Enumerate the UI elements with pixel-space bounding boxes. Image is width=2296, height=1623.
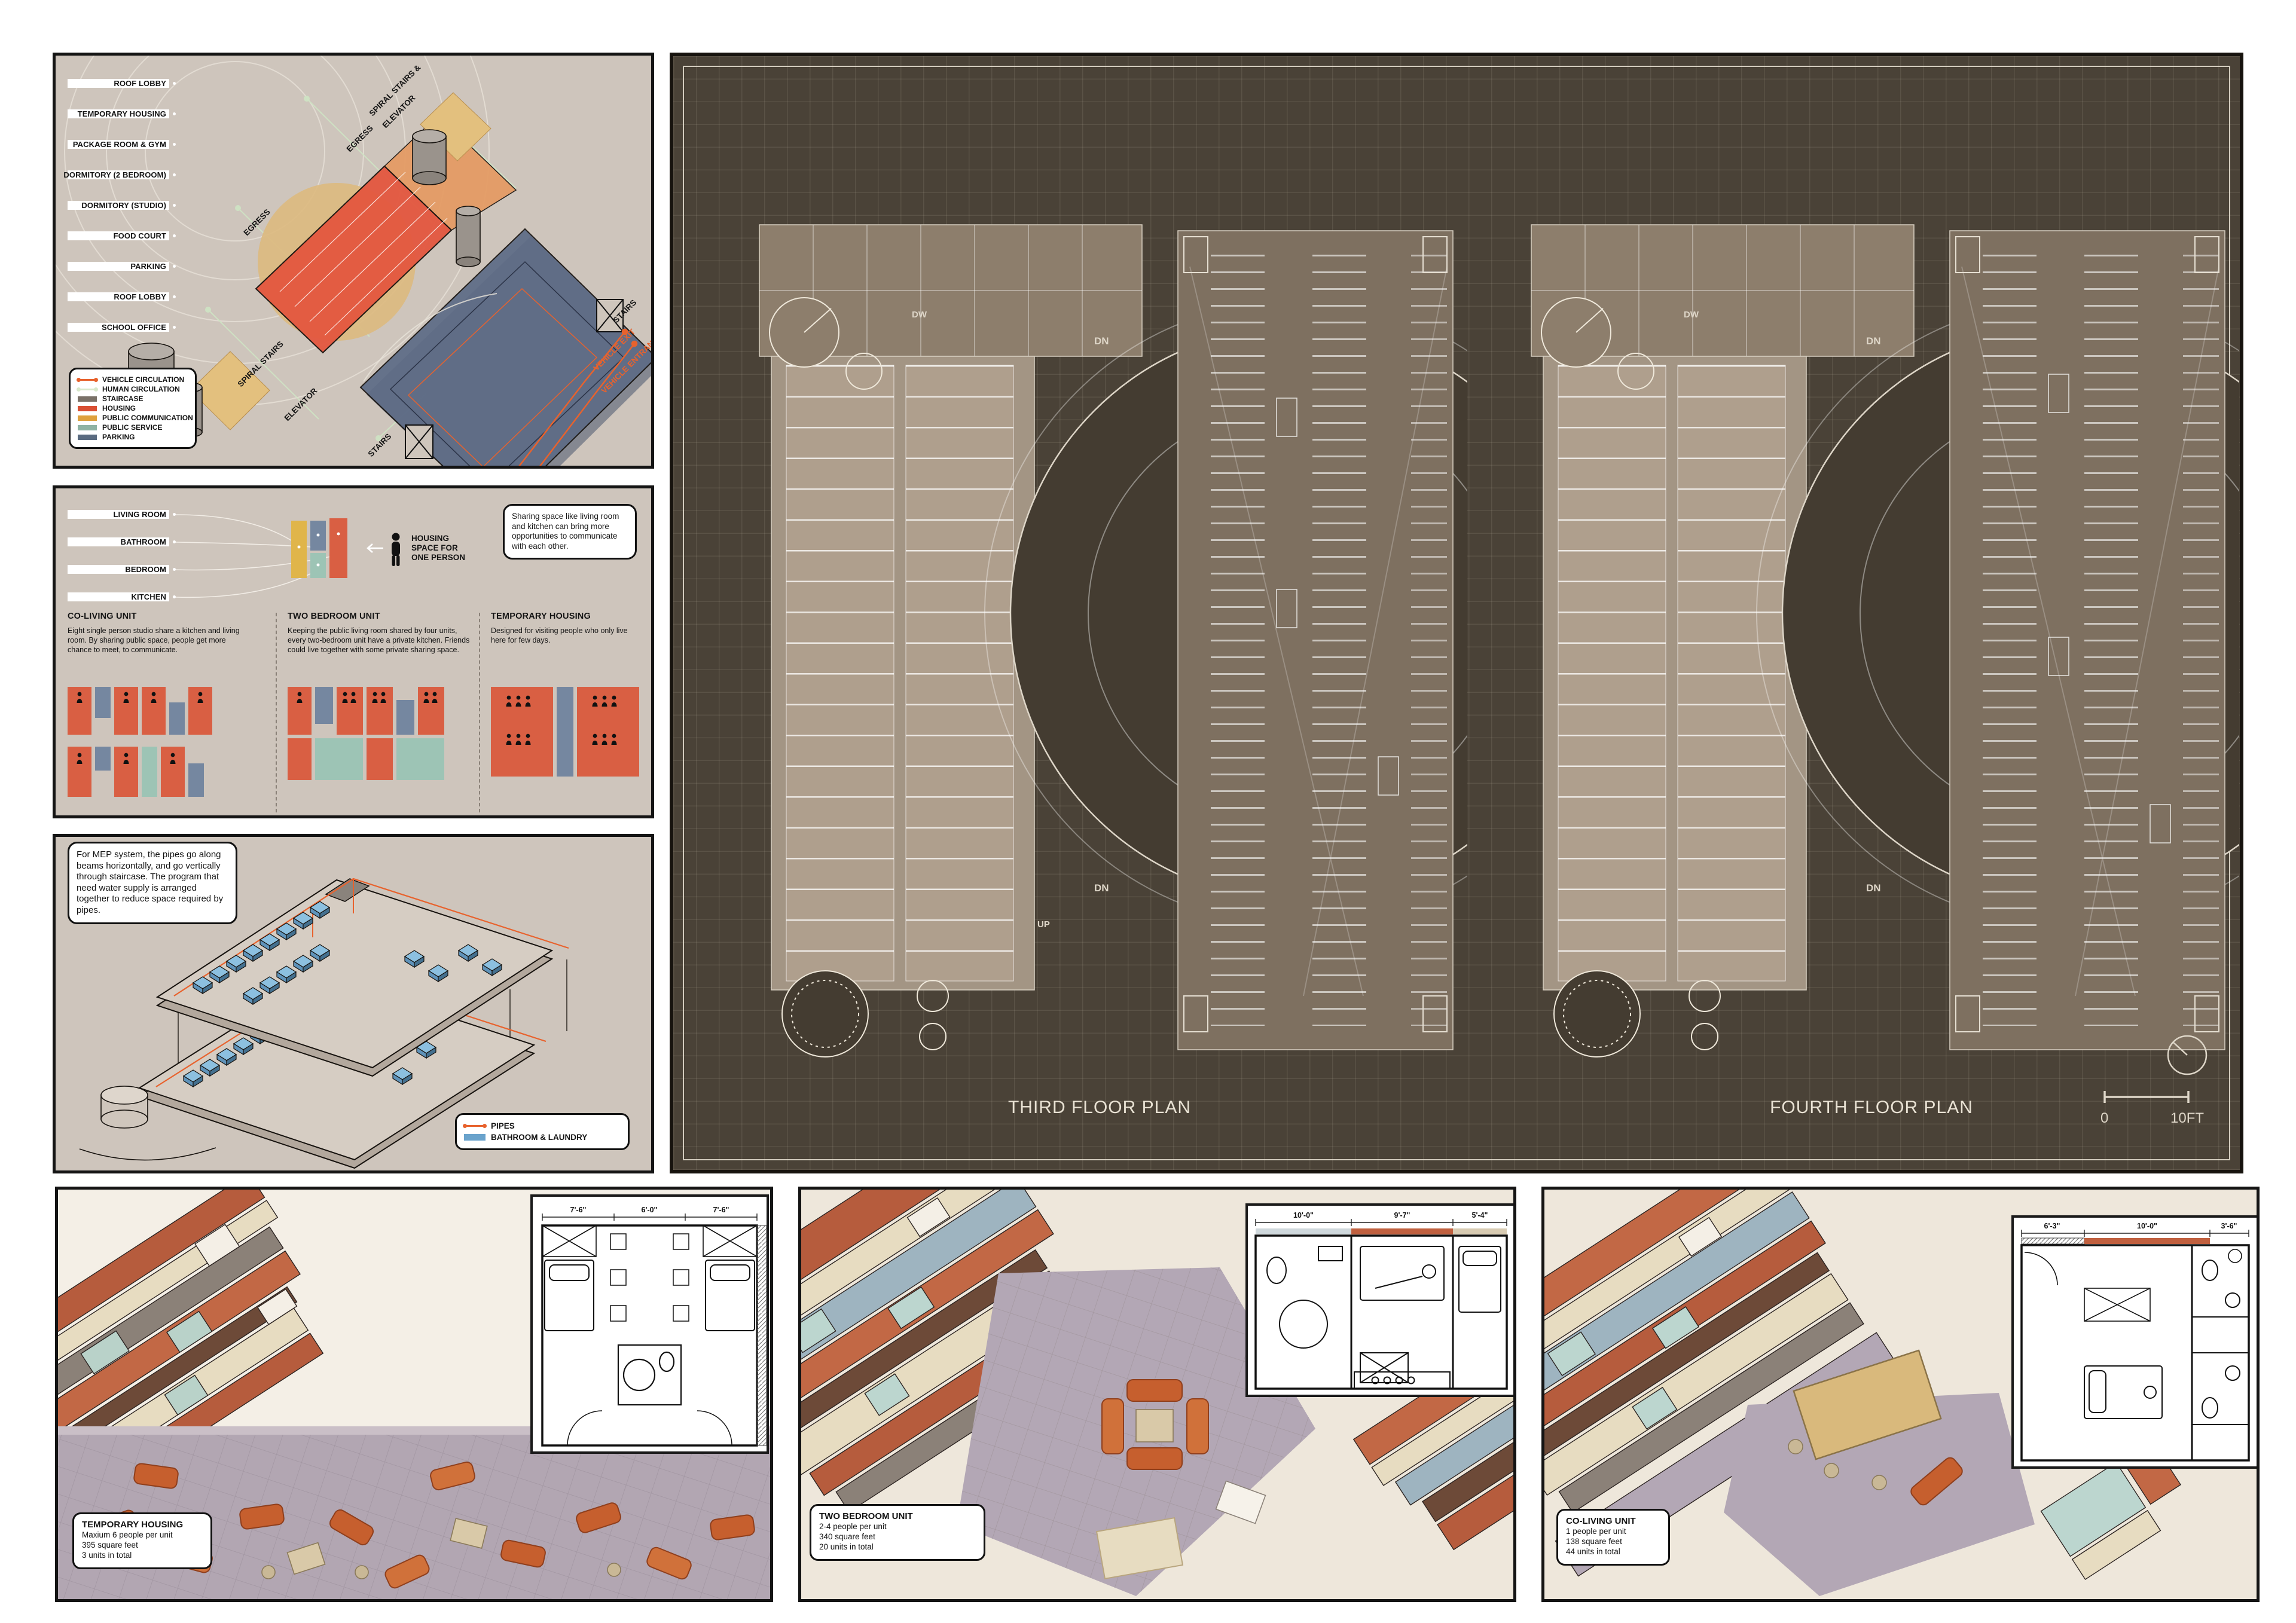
floor-plans-board: DN DN UP DW [670, 53, 2243, 1173]
temporary-housing-mosaic [491, 687, 646, 806]
program-legend: VEHICLE CIRCULATION HUMAN CIRCULATION ST… [69, 368, 197, 449]
legend-label: PIPES [491, 1121, 515, 1130]
infobox-line: 340 square feet [819, 1532, 976, 1542]
program-label: TEMPORARY HOUSING [68, 109, 169, 118]
section-divider [276, 613, 277, 812]
infobox-title: CO-LIVING UNIT [1566, 1516, 1660, 1526]
legend-row: PARKING [78, 432, 188, 442]
dim-label: 6'-0" [642, 1206, 658, 1214]
dim-label: 7'-6" [713, 1206, 729, 1214]
legend-row: STAIRCASE [78, 394, 188, 404]
temporary-housing-heading: TEMPORARY HOUSING [491, 612, 591, 621]
program-axon-panel: SPIRAL STAIRS & ELEVATOR EGRESS EGRESS S… [53, 53, 654, 469]
room-label-list: LIVING ROOM BATHROOM BEDROOM KITCHEN [68, 510, 169, 620]
program-label: DORMITORY (STUDIO) [68, 201, 169, 210]
program-label: SCHOOL OFFICE [68, 323, 169, 332]
dim-label: 9'-7" [1394, 1211, 1410, 1219]
legend-row: HOUSING [78, 404, 188, 413]
co-living-infobox: CO-LIVING UNIT 1 people per unit 138 squ… [1556, 1509, 1670, 1566]
person-caption: HOUSING SPACE FOR ONE PERSON [411, 534, 465, 563]
leader-dot [173, 326, 176, 329]
parking-swatch-icon [78, 435, 97, 440]
co-living-unit-panel: 6'-3" 10'-0" 3'-6" [1541, 1187, 2260, 1602]
leader-dot [173, 234, 176, 237]
program-label-text: DORMITORY (2 BEDROOM) [63, 170, 166, 179]
scale-bar [2105, 1091, 2188, 1103]
sharing-space-callout: Sharing space like living room and kitch… [503, 504, 637, 560]
dim-label: 10'-0" [1293, 1211, 1314, 1219]
presentation-board: SPIRAL STAIRS & ELEVATOR EGRESS EGRESS S… [0, 0, 2296, 1623]
legend-label: HOUSING [102, 404, 136, 412]
legend-label: HUMAN CIRCULATION [102, 385, 180, 393]
egress-top-label: EGRESS [345, 124, 375, 154]
mep-panel: For MEP system, the pipes go along beams… [53, 834, 654, 1173]
dn-annotation: DN [1866, 335, 1881, 347]
infobox-line: 44 units in total [1566, 1547, 1660, 1557]
temporary-housing-panel: 7'-6" 6'-0" 7'-6" [55, 1187, 773, 1602]
program-label-text: DORMITORY (STUDIO) [81, 201, 166, 210]
leader-dot [173, 265, 176, 268]
leader-dot [173, 595, 176, 598]
room-label-text: LIVING ROOM [114, 510, 167, 519]
dn-annotation: DN [1094, 882, 1109, 894]
scale-and-north: 0 10FT [2097, 1030, 2223, 1132]
caption-line: ONE PERSON [411, 553, 465, 563]
program-label: ROOF LOBBY [68, 292, 169, 301]
dim-label: 5'-4" [1472, 1211, 1488, 1219]
infobox-line: 138 square feet [1566, 1537, 1660, 1547]
leader-dot [173, 82, 176, 85]
legend-label: PARKING [102, 433, 135, 441]
room-label-text: KITCHEN [132, 592, 166, 601]
stair-box-bottom [405, 425, 433, 459]
infobox-title: TEMPORARY HOUSING [82, 1520, 203, 1530]
mep-legend: PIPES BATHROOM & LAUNDRY [455, 1113, 630, 1150]
dn-annotation: DN [1866, 882, 1881, 894]
co-living-unit-heading: CO-LIVING UNIT [68, 612, 137, 621]
dim-label: 10'-0" [2137, 1222, 2157, 1230]
dim-label: 6'-3" [2044, 1222, 2060, 1230]
room-label: BEDROOM [68, 565, 169, 574]
legend-label: VEHICLE CIRCULATION [102, 375, 184, 384]
dim-label: 7'-6" [570, 1206, 587, 1214]
program-label-text: ROOF LOBBY [114, 292, 166, 301]
third-floor-plan-drawing: DN DN UP DW [732, 219, 1467, 1059]
two-bedroom-unit-description: Keeping the public living room shared by… [288, 626, 470, 655]
two-bedroom-unit-heading: TWO BEDROOM UNIT [288, 612, 380, 621]
program-label-text: PARKING [130, 262, 166, 271]
two-bedroom-infobox: TWO BEDROOM UNIT 2-4 people per unit 340… [810, 1504, 985, 1561]
caption-line: SPACE FOR [411, 543, 465, 553]
temporary-housing-infobox: TEMPORARY HOUSING Maxium 6 people per un… [72, 1512, 212, 1569]
unit-block-diagram [289, 517, 361, 583]
arrow-to-person-icon [368, 544, 383, 552]
program-label-text: FOOD COURT [114, 231, 166, 240]
legend-label: PUBLIC COMMUNICATION [102, 414, 193, 422]
leader-dot [173, 143, 176, 146]
bathroom-laundry-swatch-icon [464, 1134, 486, 1141]
program-label: ROOF LOBBY [68, 79, 169, 88]
dn-annotation: DN [1094, 335, 1109, 347]
room-label: BATHROOM [68, 537, 169, 546]
infobox-line: 3 units in total [82, 1551, 203, 1561]
leader-dot [173, 568, 176, 571]
leader-dot [173, 204, 176, 207]
legend-row: PUBLIC SERVICE [78, 423, 188, 432]
program-label: PACKAGE ROOM & GYM [68, 140, 169, 149]
parking-slab [1178, 231, 1453, 1050]
program-label: FOOD COURT [68, 231, 169, 240]
human-circulation-line-icon [78, 389, 97, 390]
temporary-housing-floorplan-inset: 7'-6" 6'-0" 7'-6" [532, 1196, 768, 1453]
legend-row: HUMAN CIRCULATION [78, 384, 188, 394]
infobox-line: 2-4 people per unit [819, 1522, 976, 1532]
mep-callout: For MEP system, the pipes go along beams… [68, 842, 237, 924]
dw-annotation: DW [1684, 310, 1699, 320]
program-label-list: ROOF LOBBY TEMPORARY HOUSING PACKAGE ROO… [68, 79, 169, 353]
elevator-label: ELEVATOR [283, 386, 319, 423]
person-icon [386, 531, 406, 568]
program-label-text: SCHOOL OFFICE [102, 323, 166, 332]
co-living-unit-description: Eight single person studio share a kitch… [68, 626, 250, 655]
leader-dot [173, 173, 176, 176]
legend-label: BATHROOM & LAUNDRY [491, 1133, 587, 1142]
leader-dot [173, 112, 176, 115]
dw-annotation: DW [912, 310, 927, 320]
infobox-line: 1 people per unit [1566, 1527, 1660, 1537]
public-communication-swatch-icon [78, 415, 97, 421]
caption-line: HOUSING [411, 534, 465, 543]
room-label-text: BEDROOM [125, 565, 166, 574]
leader-dot [173, 540, 176, 543]
infobox-title: TWO BEDROOM UNIT [819, 1511, 976, 1521]
two-bedroom-unit-panel: 10'-0" 9'-7" 5'-4" [798, 1187, 1516, 1602]
legend-label: PUBLIC SERVICE [102, 423, 162, 432]
program-label-text: TEMPORARY HOUSING [78, 109, 166, 118]
program-label: PARKING [68, 262, 169, 271]
fourth-floor-plan-drawing: DN DN DW [1504, 219, 2239, 1059]
infobox-line: 20 units in total [819, 1542, 976, 1552]
program-label: DORMITORY (2 BEDROOM) [68, 170, 169, 179]
housing-swatch-icon [78, 406, 97, 411]
co-living-floorplan-inset: 6'-3" 10'-0" 3'-6" [2013, 1217, 2257, 1468]
public-service-swatch-icon [78, 425, 97, 430]
scale-ten-label: 10FT [2170, 1110, 2204, 1126]
legend-row: VEHICLE CIRCULATION [78, 375, 188, 384]
two-bedroom-unit-mosaic [288, 687, 485, 806]
room-label: KITCHEN [68, 592, 169, 601]
staircase-swatch-icon [78, 396, 97, 402]
co-living-unit-mosaic [68, 687, 265, 806]
leader-dot [173, 513, 176, 516]
pipes-line-icon [464, 1125, 486, 1127]
program-label-text: PACKAGE ROOM & GYM [73, 140, 166, 149]
parking-slab [1950, 231, 2225, 1050]
third-floor-plan-title: THIRD FLOOR PLAN [732, 1098, 1467, 1118]
two-bedroom-floorplan-inset: 10'-0" 9'-7" 5'-4" [1247, 1205, 1513, 1396]
dim-label: 3'-6" [2221, 1222, 2237, 1230]
room-label: LIVING ROOM [68, 510, 169, 519]
legend-label: STAIRCASE [102, 395, 143, 403]
legend-row: PIPES [464, 1120, 621, 1132]
scale-zero-label: 0 [2100, 1110, 2108, 1126]
legend-row: BATHROOM & LAUNDRY [464, 1132, 621, 1143]
legend-row: PUBLIC COMMUNICATION [78, 413, 188, 423]
temporary-housing-description: Designed for visiting people who only li… [491, 626, 640, 645]
room-label-text: BATHROOM [121, 537, 166, 546]
infobox-line: 395 square feet [82, 1541, 203, 1551]
vehicle-circulation-line-icon [78, 379, 97, 381]
unit-types-panel: LIVING ROOM BATHROOM BEDROOM KITCHEN HOU… [53, 485, 654, 818]
leader-dot [173, 295, 176, 298]
program-label-text: ROOF LOBBY [114, 79, 166, 88]
up-annotation: UP [1037, 919, 1050, 930]
infobox-line: Maxium 6 people per unit [82, 1530, 203, 1541]
